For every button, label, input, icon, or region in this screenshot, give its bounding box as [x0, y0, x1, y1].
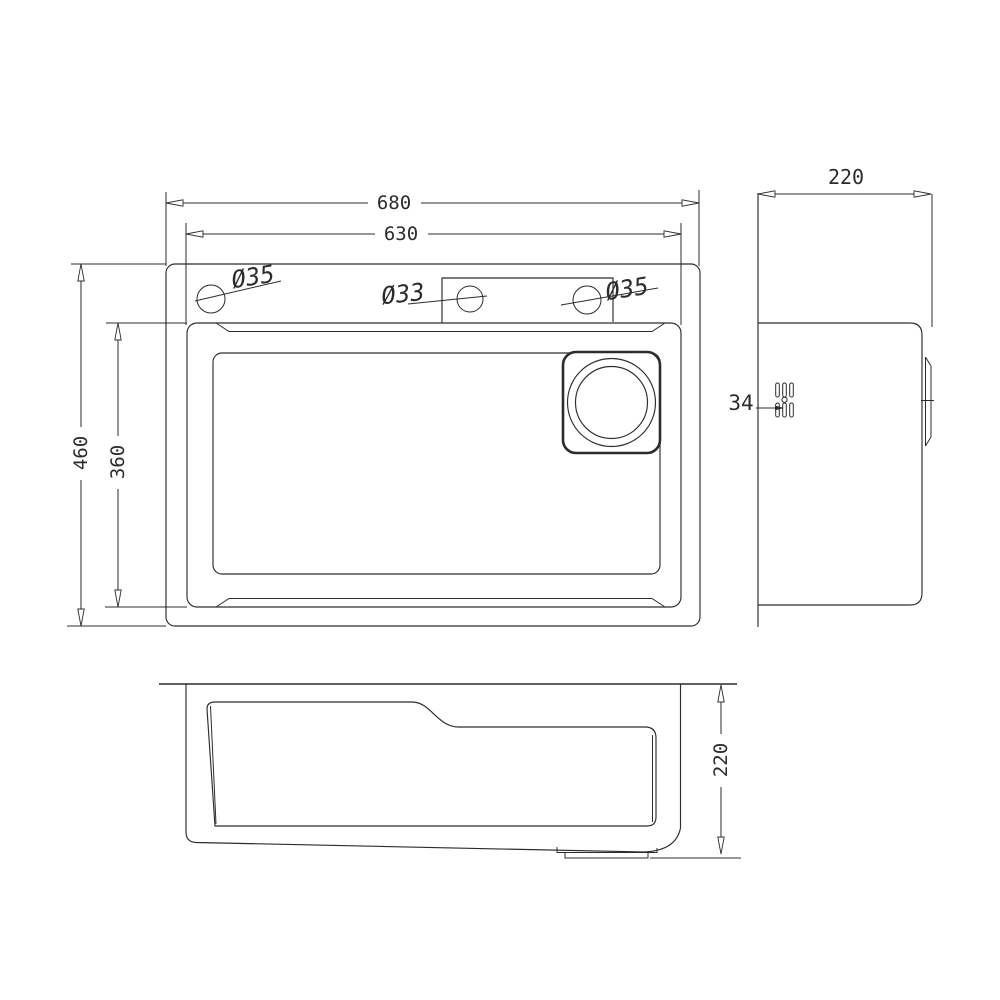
side-bowl-body [758, 323, 922, 605]
front-inner-profile-double [211, 706, 653, 824]
dim-inner-depth-text: 360 [107, 445, 129, 479]
plan-cup-holder [563, 352, 660, 453]
front-inner-profile [207, 702, 656, 826]
technical-drawing-sheet: Ø35 Ø33 Ø35 680 630 460 360 [0, 0, 1000, 1000]
front-dimension: 220 [650, 685, 741, 858]
side-mounting-clip [921, 357, 934, 446]
hole-left-label: Ø35 [229, 260, 276, 294]
dim-outer-width-text: 680 [377, 192, 411, 214]
plan-chamfer-top [216, 323, 665, 332]
side-drain-slots [776, 383, 794, 417]
sink-drawing: Ø35 Ø33 Ø35 680 630 460 360 [0, 0, 1000, 1000]
hole-right-label: Ø35 [603, 272, 650, 306]
side-height-text: 220 [828, 165, 864, 189]
side-view: 34 220 [728, 165, 934, 627]
side-drain-hole [782, 397, 787, 402]
side-dimension: 220 [758, 165, 932, 327]
plan-chamfer-bottom [216, 599, 665, 608]
plan-hole-left [197, 285, 225, 313]
front-drain-flange [557, 847, 657, 858]
front-height-text: 220 [710, 743, 732, 777]
side-drain-label: 34 [728, 391, 753, 415]
dim-outer-depth-text: 460 [70, 436, 92, 470]
front-view: 220 [159, 684, 741, 858]
width-extension-lines [166, 190, 699, 325]
hole-center-label: Ø33 [380, 278, 426, 310]
dim-inner-width-text: 630 [384, 223, 418, 245]
front-bowl-shell [186, 684, 681, 852]
plan-view: Ø35 Ø33 Ø35 680 630 460 360 [67, 190, 700, 626]
